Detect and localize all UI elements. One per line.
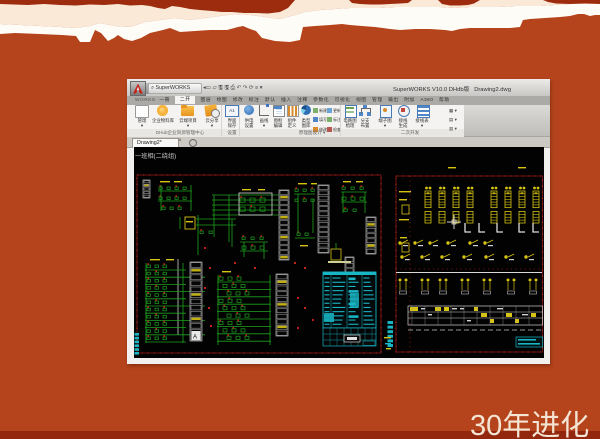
svg-text:一班相(二绕组): 一班相(二绕组): [135, 152, 176, 160]
svg-text:A: A: [193, 335, 197, 341]
